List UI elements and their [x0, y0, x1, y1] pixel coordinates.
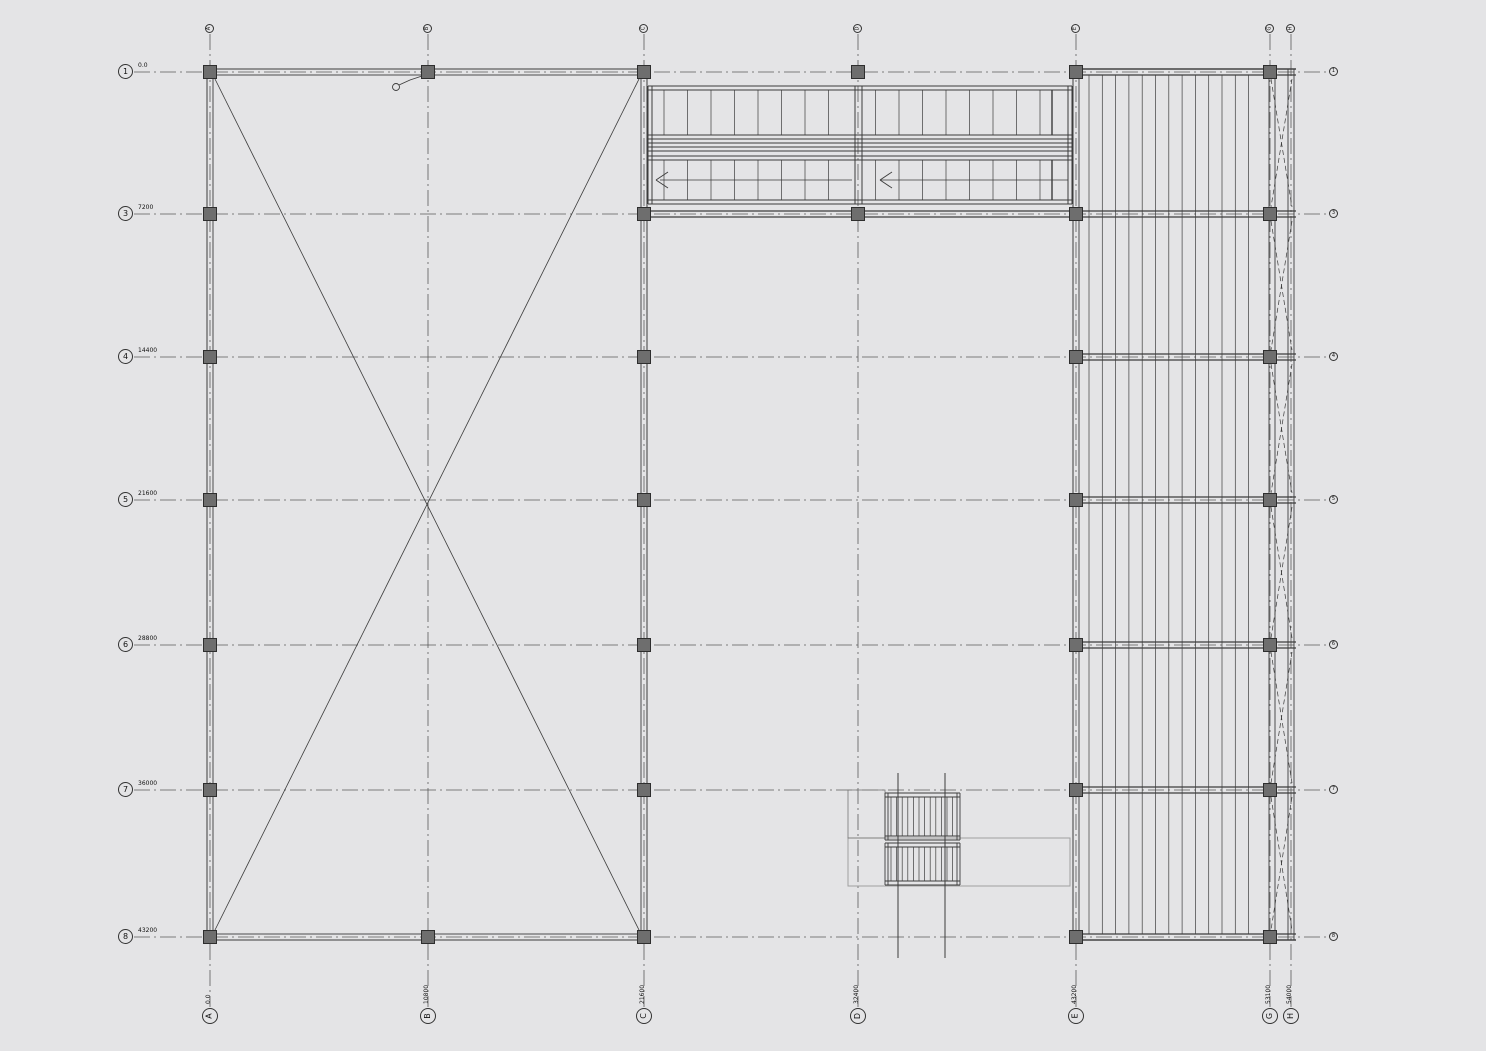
grid-dim-row-7: 36000	[138, 781, 157, 787]
grid-bubble-row-3: 3	[118, 206, 133, 221]
grid-bubble-row-1: 1	[118, 64, 133, 79]
grid-bubble-col-E-label: E	[1072, 1013, 1080, 1018]
grid-bubble-col-H: H	[1283, 1008, 1299, 1024]
grid-bubble-row-7: 7	[118, 782, 133, 797]
grid-bubble-row-7-right: 7	[1329, 785, 1338, 794]
grid-bubble-col-C-top-label: C	[641, 27, 646, 31]
grid-bubble-col-H-label: H	[1287, 1013, 1295, 1019]
grid-bubble-col-G-label: G	[1266, 1013, 1274, 1019]
grid-bubble-col-C-label: C	[640, 1013, 648, 1019]
grid-bubble-col-D-label: D	[854, 1013, 862, 1019]
floor-plan-canvas: 10.0137200341440045216005628800673600078…	[0, 0, 1486, 1051]
grid-bubble-col-E-top-label: E	[1073, 27, 1078, 30]
grid-bubble-col-G: G	[1262, 1008, 1278, 1024]
grid-bubble-col-A-top-label: A	[207, 27, 212, 30]
grid-bubble-col-A: A	[202, 1008, 218, 1024]
grid-bubble-row-8-right: 8	[1329, 932, 1338, 941]
grid-bubble-row-6: 6	[118, 637, 133, 652]
grid-dim-col-C: 21600	[640, 962, 646, 1004]
grid-dim-row-1: 0.0	[138, 63, 148, 69]
grid-bubble-col-G-top-label: G	[1267, 27, 1272, 31]
grid-bubble-col-D-top: D	[853, 24, 862, 33]
grid-bubble-col-A-label: A	[206, 1013, 214, 1018]
grid-bubble-col-D: D	[850, 1008, 866, 1024]
grid-dim-row-4: 14400	[138, 348, 157, 354]
grid-bubble-col-A-top: A	[205, 24, 214, 33]
cross-bracing	[213, 75, 641, 934]
deck-joists	[1073, 69, 1296, 940]
grid-bubble-col-E: E	[1068, 1008, 1084, 1024]
grid-bubble-row-4: 4	[118, 349, 133, 364]
grid-dim-col-E: 43200	[1072, 962, 1078, 1004]
grid-bubble-col-C-top: C	[639, 24, 648, 33]
grid-bubble-col-C: C	[636, 1008, 652, 1024]
grid-dim-col-H: 54000	[1287, 962, 1293, 1004]
grid-bubble-row-6-right: 6	[1329, 640, 1338, 649]
grid-bubble-col-B-label: B	[424, 1013, 432, 1019]
walkway-band	[645, 86, 1076, 217]
grid-dim-col-B: 10800	[424, 962, 430, 1004]
grid-bubble-row-4-right: 4	[1329, 352, 1338, 361]
grid-dim-row-8: 43200	[138, 928, 157, 934]
grid-bubble-col-H-top: H	[1286, 24, 1295, 33]
grid-dim-row-6: 28800	[138, 636, 157, 642]
grid-dim-row-3: 7200	[138, 205, 153, 211]
grid-bubble-col-B-top: B	[423, 24, 432, 33]
grid-dim-col-D: 32400	[854, 962, 860, 1004]
stair-detail	[848, 773, 960, 958]
grid-bubble-col-G-top: G	[1265, 24, 1274, 33]
grid-bubble-row-1-right: 1	[1329, 67, 1338, 76]
grid-dim-col-G: 53100	[1266, 962, 1272, 1004]
grid-bubble-col-B: B	[420, 1008, 436, 1024]
grid-bubble-row-3-right: 3	[1329, 209, 1338, 218]
plan-linework	[0, 0, 1486, 1051]
leader-tag	[393, 76, 423, 91]
grid-dim-row-5: 21600	[138, 491, 157, 497]
grid-bubble-row-5-right: 5	[1329, 495, 1338, 504]
grid-bubble-row-8: 8	[118, 929, 133, 944]
grid-bubble-col-H-top-label: H	[1288, 27, 1293, 31]
grid-bubble-col-E-top: E	[1071, 24, 1080, 33]
grid-bubble-col-D-top-label: D	[855, 27, 860, 31]
stair-outline-faint	[848, 838, 1070, 886]
grid-bubble-row-5: 5	[118, 492, 133, 507]
grid-dim-col-A: 0.0	[206, 962, 212, 1004]
grid-bubble-col-B-top-label: B	[425, 27, 430, 30]
